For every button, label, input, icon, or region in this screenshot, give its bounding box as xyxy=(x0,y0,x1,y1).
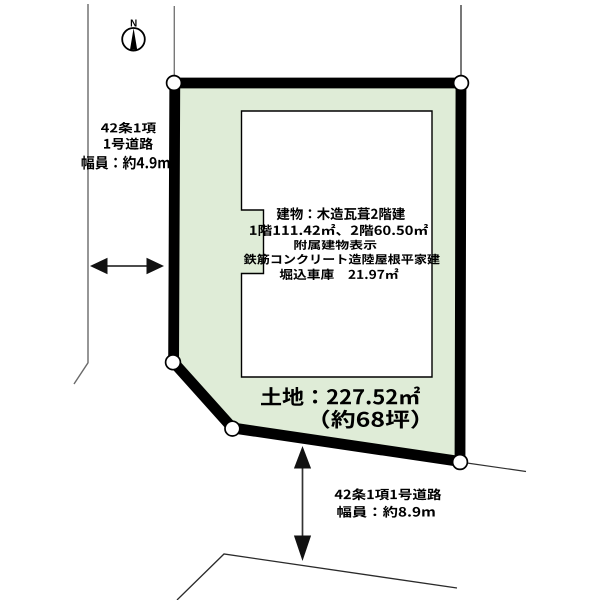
svg-text:N: N xyxy=(130,18,137,29)
